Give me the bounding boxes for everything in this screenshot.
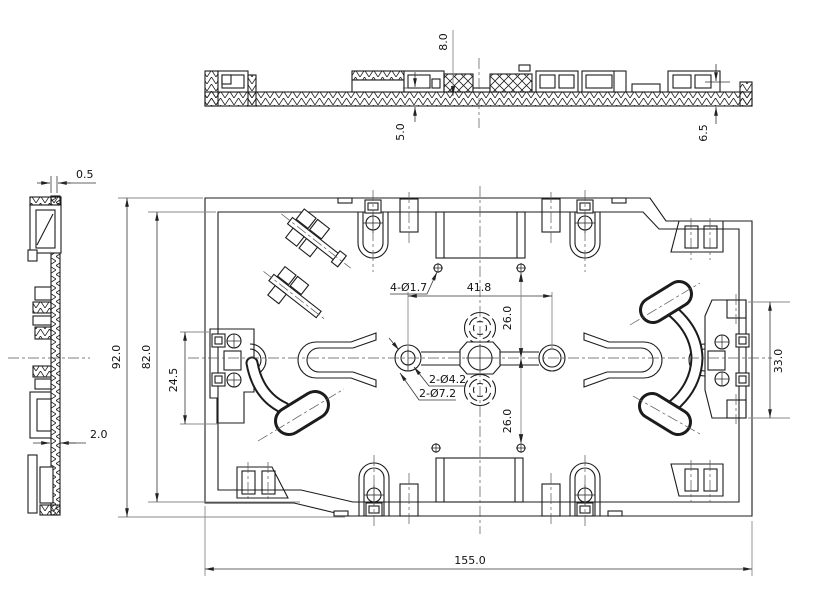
section-boss-cap xyxy=(352,71,404,80)
u-slot-top-right xyxy=(570,190,600,272)
dim-label-2-0: 2.0 xyxy=(90,428,108,441)
top-center-block xyxy=(436,212,525,258)
section-rib xyxy=(248,75,256,106)
corner-bracket-bottom-right xyxy=(671,460,723,502)
corner-bracket-top-right xyxy=(671,218,723,260)
drawing-sheet: 8.0 5.0 6.5 0.5 xyxy=(0,0,833,596)
dim-label-26-lower: 26.0 xyxy=(501,409,514,434)
callout-label-4-2: 2-Ø4.2 xyxy=(429,373,466,386)
dim-label-5: 5.0 xyxy=(394,123,407,141)
bottom-center-block xyxy=(436,458,523,502)
dim-label-92: 92.0 xyxy=(110,345,123,370)
dim-label-8: 8.0 xyxy=(437,33,450,51)
left-side-view: 0.5 2.0 xyxy=(8,168,108,515)
dim-label-26-upper: 26.0 xyxy=(501,306,514,331)
dim-label-33: 33.0 xyxy=(772,349,785,374)
technical-drawing-canvas: 8.0 5.0 6.5 0.5 xyxy=(0,0,833,596)
section-hatched-boss-right xyxy=(490,74,532,92)
dim-label-155: 155.0 xyxy=(454,554,486,567)
dim-label-24-5: 24.5 xyxy=(167,368,180,393)
retainer-finger-left xyxy=(298,333,376,387)
section-left-end-wall xyxy=(205,71,218,106)
section-base-plate xyxy=(205,92,752,106)
corner-bracket-bottom-left xyxy=(237,462,288,502)
u-slot-top-left xyxy=(358,190,388,272)
callout-label-1-7: 4-Ø1.7 xyxy=(390,281,427,294)
section-right-end-wall xyxy=(740,82,752,106)
section-hatched-boss-left xyxy=(444,74,473,92)
callout-label-7-2: 2-Ø7.2 xyxy=(419,387,456,400)
top-section-view: 8.0 5.0 6.5 xyxy=(205,30,752,142)
main-plan-view: 92.0 82.0 24.5 41.8 26.0 26.0 33.0 xyxy=(110,186,790,576)
dim-label-0-5: 0.5 xyxy=(76,168,94,181)
dim-label-82: 82.0 xyxy=(140,345,153,370)
dim-label-6-5: 6.5 xyxy=(697,124,710,142)
dim-label-41-8: 41.8 xyxy=(467,281,492,294)
section-tab xyxy=(519,65,530,71)
retainer-finger-right xyxy=(584,333,662,387)
splice-holder-lower xyxy=(254,258,337,333)
